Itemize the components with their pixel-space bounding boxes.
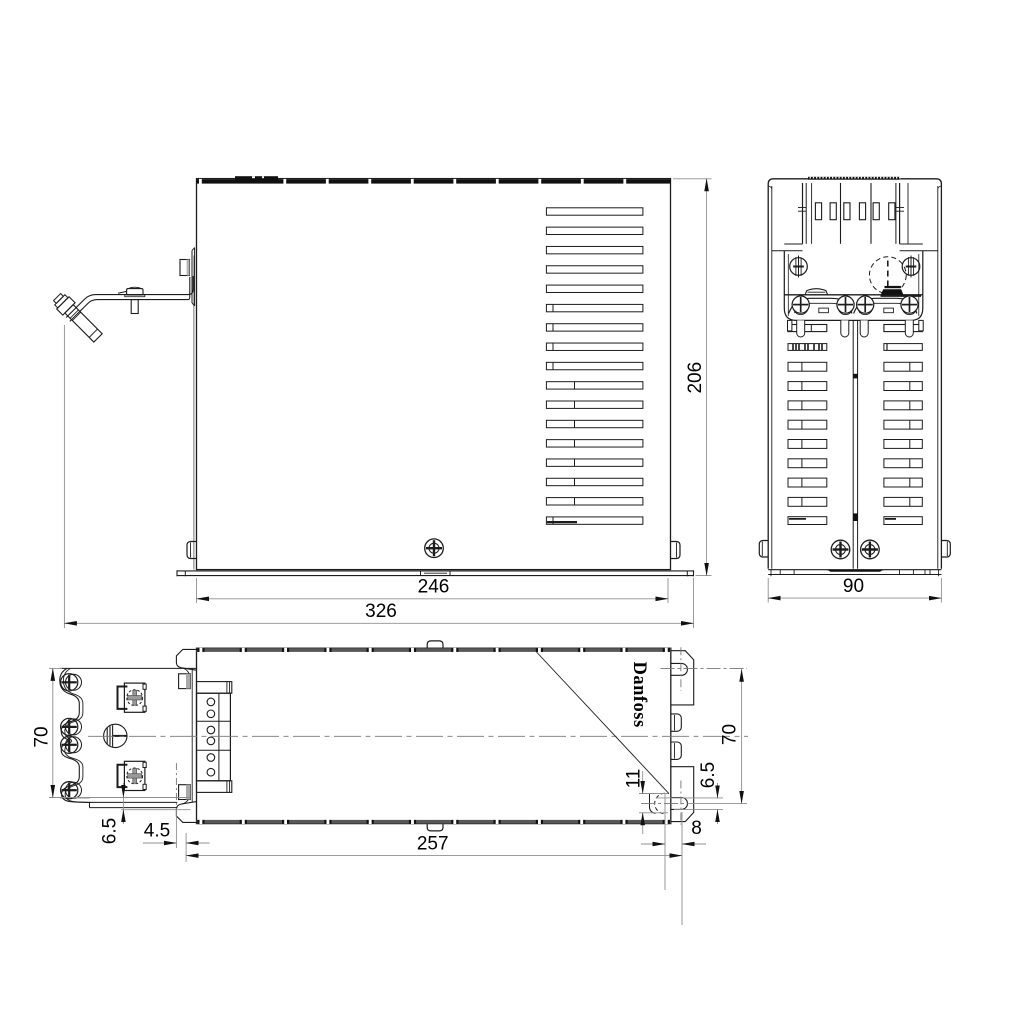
svg-text:4.5: 4.5: [144, 821, 170, 842]
svg-text:6.5: 6.5: [100, 818, 121, 844]
svg-text:11: 11: [624, 769, 645, 789]
svg-text:206: 206: [685, 362, 706, 394]
svg-text:70: 70: [720, 724, 741, 745]
svg-text:326: 326: [365, 601, 397, 622]
svg-text:246: 246: [418, 577, 450, 598]
svg-text:6.5: 6.5: [698, 762, 719, 788]
svg-text:257: 257: [417, 834, 449, 855]
svg-text:90: 90: [843, 576, 864, 597]
svg-text:Danfoss: Danfoss: [629, 662, 649, 728]
svg-text:70: 70: [32, 726, 53, 747]
svg-text:8: 8: [691, 818, 702, 839]
